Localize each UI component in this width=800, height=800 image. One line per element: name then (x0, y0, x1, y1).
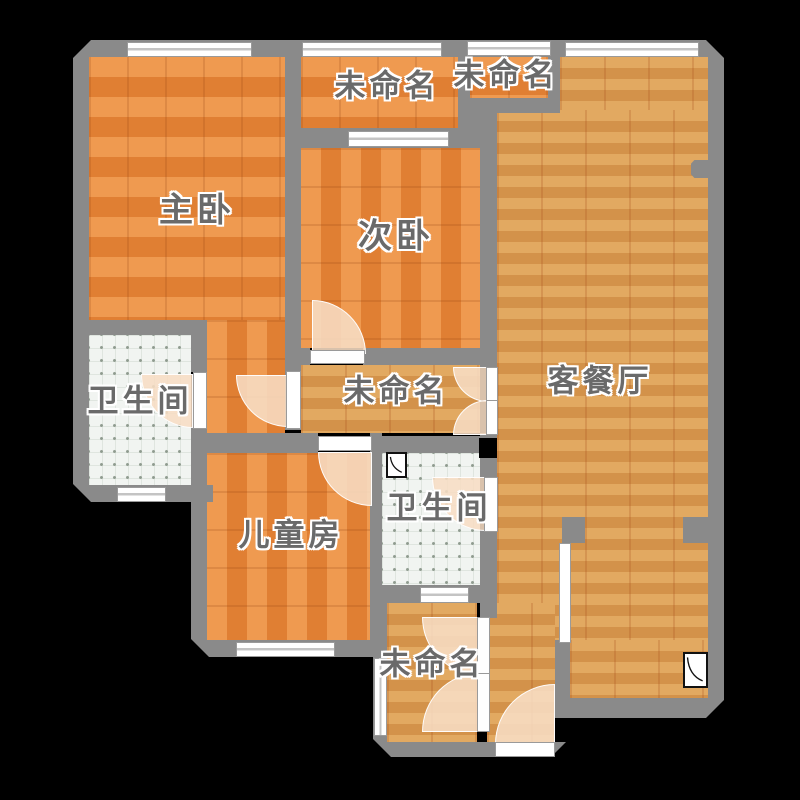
room-label-living: 客餐厅 (548, 356, 653, 401)
wall-master-balcony-divider (285, 40, 301, 365)
wall-living-bottom (555, 698, 724, 718)
wall-right-notch (691, 160, 708, 178)
wall-outer-right (708, 40, 724, 718)
wall-hallway-top-a (285, 348, 310, 365)
room-label-bathroom-main: 卫生间 (88, 376, 193, 421)
room-label-balcony-top: 未命名 (335, 61, 440, 106)
door-leaf-master[interactable] (286, 371, 301, 429)
utility-shaft (479, 438, 497, 458)
room-label-master-bedroom: 主卧 (159, 183, 235, 232)
door-leaf-living-divider[interactable] (559, 543, 571, 643)
room-label-balcony-bottom: 未命名 (380, 639, 485, 684)
curve-fixture-icon[interactable] (683, 652, 708, 688)
pillar-living-left (562, 517, 585, 543)
curve-icon (388, 454, 405, 476)
window-kids-bottom[interactable] (236, 642, 335, 657)
window-balcony-second[interactable] (348, 131, 449, 147)
curve-fixture-icon[interactable] (386, 452, 407, 478)
window-bathroom-main[interactable] (117, 487, 166, 502)
window-balcony-top[interactable] (302, 42, 442, 57)
wall-master-bottom (73, 320, 207, 335)
wall-living-left-upper (480, 110, 497, 367)
wall-kids-top (191, 433, 318, 453)
wall-living-left-lower (480, 530, 497, 618)
room-label-nook-top: 未命名 (454, 50, 559, 95)
window-living-top[interactable] (565, 42, 699, 57)
door-leaf-kids[interactable] (318, 436, 372, 451)
room-label-second-bedroom: 次卧 (358, 209, 434, 258)
pillar-living-right (683, 517, 708, 543)
curve-icon (685, 654, 706, 686)
floorplan-canvas: 主卧 次卧 未命名 未命名 客餐厅 未命名 卫生间 卫生间 儿童房 未命名 (0, 0, 800, 800)
wall-entry-right (555, 640, 570, 703)
wall-outer-left (73, 40, 89, 502)
door-leaf-entry[interactable] (495, 742, 555, 757)
window-master-top[interactable] (127, 42, 252, 57)
room-floor-living-top[interactable] (560, 57, 708, 113)
wall-kids-left (191, 485, 207, 657)
room-label-kids-room: 儿童房 (239, 510, 344, 555)
door-leaf-second[interactable] (310, 350, 365, 364)
room-label-hallway: 未命名 (344, 366, 449, 411)
wall-bathroom-guest-top (382, 436, 480, 453)
door-leaf-hallway-upper[interactable] (486, 367, 498, 402)
wall-bathroom-main-right-upper (191, 320, 207, 372)
room-label-bathroom-guest: 卫生间 (387, 483, 492, 528)
window-bathroom-guest[interactable] (420, 587, 469, 603)
door-leaf-bathroom-main[interactable] (193, 372, 207, 429)
door-leaf-hallway-lower[interactable] (486, 400, 498, 435)
wall-hallway-top-b (363, 348, 480, 365)
